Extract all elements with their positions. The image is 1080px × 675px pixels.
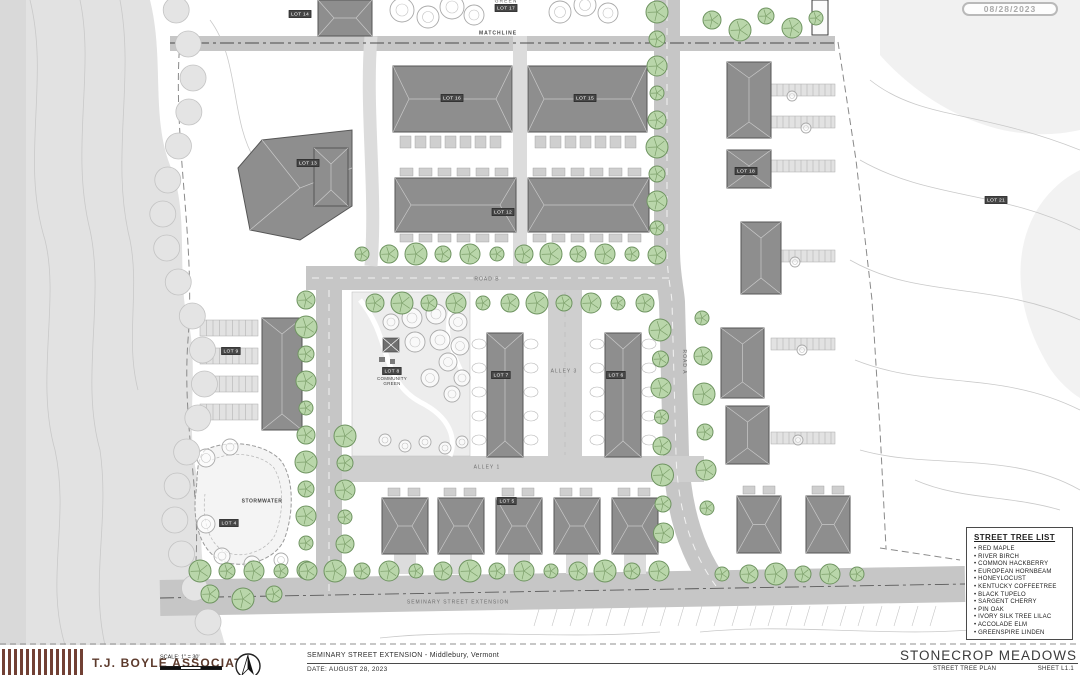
porch-stub <box>625 136 636 148</box>
patio-oval <box>590 387 604 397</box>
porch-stub <box>522 488 534 496</box>
woods-edge-tree <box>191 371 217 397</box>
street-tree-icon <box>297 426 315 444</box>
street-tree-icon <box>380 245 398 263</box>
sheet-number: SHEET L1.1 <box>1038 666 1074 672</box>
street-tree-icon <box>765 563 787 585</box>
lot-label: LOT 12 <box>492 208 514 216</box>
street-tree-icon <box>646 1 668 23</box>
porch-stub <box>590 168 603 176</box>
street-tree-icon <box>501 294 519 312</box>
hatch-tick <box>858 606 864 626</box>
patio-oval <box>472 411 486 421</box>
street-tree-icon <box>489 563 505 579</box>
woods-edge-tree <box>185 405 211 431</box>
canopy-tree-icon <box>430 330 450 350</box>
street-tree-icon <box>435 246 451 262</box>
street-tree-icon <box>694 347 712 365</box>
woods-edge-tree <box>163 0 189 23</box>
street-tree-icon <box>490 247 504 261</box>
street-tree-icon <box>647 56 667 76</box>
lot-label: LOT 4 <box>219 519 238 527</box>
site-plan-canvas <box>0 0 1080 645</box>
lot-label: LOT 9 <box>221 347 240 355</box>
woods-edge-tree <box>176 99 202 125</box>
porch-stub <box>476 234 489 242</box>
alley-1-label: ALLEY 1 <box>474 464 501 470</box>
hatch-tick <box>894 606 900 626</box>
porch-stub <box>580 488 592 496</box>
street-tree-list-item: COMMON HACKBERRY <box>974 561 1067 569</box>
street-tree-icon <box>651 378 671 398</box>
canopy-tree-icon <box>379 434 391 446</box>
hatch-tick <box>714 606 720 626</box>
porch-stub <box>438 168 451 176</box>
street-tree-list-item: SARGENT CHERRY <box>974 599 1067 607</box>
street-tree-icon <box>700 501 714 515</box>
street-tree-icon <box>219 563 235 579</box>
porch-stub <box>400 136 411 148</box>
lot-label: LOT 18 <box>735 167 757 175</box>
street-tree-icon <box>391 292 413 314</box>
street-tree-list-item: PIN OAK <box>974 607 1067 615</box>
street-tree-list-item: ACCOLADE ELM <box>974 622 1067 630</box>
street-tree-icon <box>569 562 587 580</box>
lot-label: LOT 21 <box>985 196 1007 204</box>
patio-oval <box>642 411 656 421</box>
patio-oval <box>472 363 486 373</box>
patio-oval <box>524 411 538 421</box>
tjboyle-logo <box>2 649 84 675</box>
hatch-tick <box>732 606 738 626</box>
building <box>727 62 771 138</box>
scale-label: SCALE: 1" = 30' <box>160 654 199 660</box>
street-tree-icon <box>338 510 352 524</box>
hatch-tick <box>750 606 756 626</box>
porch-stub <box>580 136 591 148</box>
building <box>496 498 542 554</box>
woods-edge-tree <box>169 541 195 567</box>
matchline-label: MATCHLINE <box>479 30 517 36</box>
street-tree-icon <box>556 295 572 311</box>
canopy-tree-icon <box>440 0 464 19</box>
porch-stub <box>438 234 451 242</box>
porch-stub <box>571 234 584 242</box>
building <box>806 496 850 553</box>
street-tree-icon <box>295 316 317 338</box>
street-tree-icon <box>655 496 671 512</box>
street-tree-icon <box>758 8 774 24</box>
porch-stub <box>400 234 413 242</box>
street-tree-icon <box>649 561 669 581</box>
street-tree-icon <box>653 437 671 455</box>
porch-stub <box>475 136 486 148</box>
canopy-tree-icon <box>405 332 425 352</box>
patio-oval <box>642 363 656 373</box>
street-tree-list-item: GREENSPIRE LINDEN <box>974 630 1067 638</box>
street-tree-icon <box>703 11 721 29</box>
street-tree-icon <box>232 588 254 610</box>
porch-stub <box>495 168 508 176</box>
street-tree-icon <box>636 294 654 312</box>
street-tree-icon <box>460 244 480 264</box>
street-tree-icon <box>244 561 264 581</box>
patio-oval <box>524 363 538 373</box>
porch-stub <box>408 488 420 496</box>
street-tree-icon <box>693 383 715 405</box>
parking-row <box>771 84 835 96</box>
street-tree-icon <box>595 244 615 264</box>
woods-edge-tree <box>195 609 221 635</box>
porch-stub <box>444 488 456 496</box>
woods-edge-tree <box>154 235 180 261</box>
hatch-tick <box>786 606 792 626</box>
lot-label: LOT 15 <box>574 94 596 102</box>
canopy-tree-icon <box>574 0 596 16</box>
seminary-street-label: SEMINARY STREET EXTENSION <box>407 599 509 605</box>
woods-edge-tree <box>165 269 191 295</box>
porch-stub <box>430 136 441 148</box>
street-tree-icon <box>336 535 354 553</box>
street-tree-icon <box>298 346 314 362</box>
hatch-tick <box>570 606 576 626</box>
canopy-tree-icon <box>419 436 431 448</box>
street-tree-icon <box>515 245 533 263</box>
parking-row <box>771 160 835 172</box>
road-a-label: ROAD A <box>681 350 687 375</box>
hatch-tick <box>840 606 846 626</box>
site-plan: MATCHLINE GREEN ROAD B ROAD A ALLEY 3 AL… <box>0 0 1080 645</box>
porch-stub <box>476 168 489 176</box>
canopy-tree-icon <box>454 370 470 386</box>
street-tree-icon <box>649 319 671 341</box>
hatch-tick <box>660 606 666 626</box>
lot-label: LOT 17 <box>495 4 517 12</box>
woods-edge-tree <box>175 31 201 57</box>
porch-stub <box>832 486 844 494</box>
woods-edge-tree <box>174 439 200 465</box>
canopy-tree-icon <box>399 440 411 452</box>
street-tree-list-item: RIVER BIRCH <box>974 554 1067 562</box>
street-tree-icon <box>421 295 437 311</box>
street-tree-icon <box>697 424 713 440</box>
street-tree-list-item: KENTUCKY COFFEETREE <box>974 584 1067 592</box>
street-tree-list-item: BLACK TUPELO <box>974 592 1067 600</box>
lot-label: LOT 5 <box>497 497 516 505</box>
alley-3-label: ALLEY 3 <box>551 368 578 374</box>
street-tree-icon <box>379 561 399 581</box>
project-name: STONECROP MEADOWS <box>900 648 1077 663</box>
canopy-tree-icon <box>451 337 469 355</box>
canopy-tree-icon <box>598 3 618 23</box>
street-tree-list-item: IVORY SILK TREE LILAC <box>974 614 1067 622</box>
building <box>262 318 302 430</box>
canopy-tree-icon <box>787 91 797 101</box>
porch-stub <box>812 486 824 494</box>
porch-stub <box>743 486 755 494</box>
woods-edge-tree <box>164 473 190 499</box>
patio-oval <box>590 339 604 349</box>
street-tree-icon <box>820 564 840 584</box>
porch-stub <box>502 488 514 496</box>
street-tree-icon <box>649 31 665 47</box>
street-tree-icon <box>189 560 211 582</box>
patio-oval <box>642 339 656 349</box>
woods-edge-tree <box>180 65 206 91</box>
street-tree-icon <box>729 19 751 41</box>
porch-stub <box>495 234 508 242</box>
canopy-tree-icon <box>421 369 439 387</box>
canopy-tree-icon <box>197 515 215 533</box>
porch-stub <box>552 168 565 176</box>
street-tree-icon <box>295 451 317 473</box>
hatch-tick <box>930 606 936 626</box>
canopy-tree-icon <box>464 5 484 25</box>
street-tree-icon <box>476 296 490 310</box>
building <box>554 498 600 554</box>
street-tree-icon <box>337 455 353 471</box>
street-tree-icon <box>299 562 317 580</box>
scale-block: SCALE: 1" = 30' <box>160 654 230 670</box>
hatch-tick <box>642 606 648 626</box>
porch-stub <box>533 234 546 242</box>
porch-stub <box>610 136 621 148</box>
street-tree-icon <box>653 351 669 367</box>
street-tree-icon <box>646 136 668 158</box>
porch-stub <box>628 234 641 242</box>
porch-stub <box>457 168 470 176</box>
street-tree-icon <box>652 464 674 486</box>
porch-stub <box>590 234 603 242</box>
drawing-sheet: MATCHLINE GREEN ROAD B ROAD A ALLEY 3 AL… <box>0 0 1080 675</box>
street-tree-list-items: RED MAPLERIVER BIRCHCOMMON HACKBERRYEURO… <box>974 546 1067 637</box>
woods-edge-tree <box>150 201 176 227</box>
street-tree-icon <box>715 567 729 581</box>
porch-stub <box>628 168 641 176</box>
street-tree-icon <box>650 221 664 235</box>
porch-stub <box>638 488 650 496</box>
woods-edge-tree <box>162 507 188 533</box>
canopy-tree-icon <box>390 0 414 22</box>
street-tree-icon <box>650 86 664 100</box>
street-tree-list-title: STREET TREE LIST <box>974 533 1067 542</box>
woods-edge-tree <box>179 303 205 329</box>
porch-stub <box>400 168 413 176</box>
street-tree-list: STREET TREE LIST RED MAPLERIVER BIRCHCOM… <box>966 527 1073 640</box>
revision-date-stamp: 08/28/2023 <box>962 2 1058 16</box>
street-tree-icon <box>809 11 823 25</box>
canopy-tree-icon <box>439 353 457 371</box>
street-tree-icon <box>459 560 481 582</box>
street-tree-icon <box>299 401 313 415</box>
street-tree-icon <box>655 410 669 424</box>
porch-stub <box>419 234 432 242</box>
hatch-tick <box>876 606 882 626</box>
lot-label: LOT 13 <box>297 159 319 167</box>
street-tree-icon <box>366 294 384 312</box>
street-tree-icon <box>201 585 219 603</box>
street-tree-icon <box>434 562 452 580</box>
building <box>737 496 781 553</box>
canopy-tree-icon <box>549 1 571 23</box>
scale-bar <box>160 666 222 670</box>
hatch-tick <box>822 606 828 626</box>
lot-label: LOT 6 <box>606 371 625 379</box>
street-tree-icon <box>324 560 346 582</box>
building <box>612 498 658 554</box>
porch-stub <box>415 136 426 148</box>
street-tree-icon <box>446 293 466 313</box>
lot-label: LOT 14 <box>289 10 311 18</box>
canopy-tree-icon <box>793 435 803 445</box>
street-tree-icon <box>296 506 316 526</box>
porch-stub <box>565 136 576 148</box>
patio-oval <box>472 435 486 445</box>
canopy-tree-icon <box>449 313 467 331</box>
lot-label: LOT 7 <box>491 371 510 379</box>
porch-stub <box>464 488 476 496</box>
street-tree-list-item: RED MAPLE <box>974 546 1067 554</box>
street-tree-icon <box>654 523 674 543</box>
road-b-label: ROAD B <box>474 276 499 282</box>
canopy-tree-icon <box>456 436 468 448</box>
hatch-tick <box>696 606 702 626</box>
building <box>395 178 516 232</box>
street-tree-icon <box>297 291 315 309</box>
patio-oval <box>472 339 486 349</box>
canopy-tree-icon <box>417 6 439 28</box>
canopy-tree-icon <box>444 386 460 402</box>
street-tree-icon <box>581 293 601 313</box>
street-tree-icon <box>514 561 534 581</box>
street-tree-icon <box>526 292 548 314</box>
street-tree-icon <box>740 565 758 583</box>
porch-stub <box>571 168 584 176</box>
building <box>438 498 484 554</box>
building <box>721 328 764 398</box>
stormwater-label: STORMWATER <box>242 498 283 504</box>
porch-stub <box>595 136 606 148</box>
lot-label: LOT 16 <box>441 94 463 102</box>
hatch-tick <box>588 606 594 626</box>
street-tree-icon <box>624 563 640 579</box>
hatch-tick <box>624 606 630 626</box>
hatch-tick <box>606 606 612 626</box>
porch-stub <box>609 168 622 176</box>
street-tree-icon <box>299 536 313 550</box>
project-line: SEMINARY STREET EXTENSION - Middlebury, … <box>307 652 499 659</box>
street-tree-icon <box>355 247 369 261</box>
porch-stub <box>609 234 622 242</box>
woods-edge-tree <box>190 337 216 363</box>
street-tree-icon <box>405 243 427 265</box>
canopy-tree-icon <box>214 548 230 564</box>
hatch-tick <box>912 606 918 626</box>
sheet-title: STREET TREE PLAN <box>933 666 996 672</box>
street-tree-icon <box>782 18 802 38</box>
street-tree-icon <box>354 563 370 579</box>
porch-stub <box>490 136 501 148</box>
patio-oval <box>590 411 604 421</box>
hatch-tick <box>804 606 810 626</box>
building <box>382 498 428 554</box>
porch-stub <box>457 234 470 242</box>
street-tree-list-item: EUROPEAN HORNBEAM <box>974 569 1067 577</box>
street-tree-icon <box>647 191 667 211</box>
street-tree-icon <box>850 567 864 581</box>
hatch-tick <box>768 606 774 626</box>
woods-edge-tree <box>165 133 191 159</box>
street-tree-icon <box>274 564 288 578</box>
street-tree-list-item: HONEYLOCUST <box>974 576 1067 584</box>
date-line: DATE: AUGUST 28, 2023 <box>307 666 387 673</box>
building <box>528 178 649 232</box>
patio-oval <box>590 435 604 445</box>
patio-oval <box>472 387 486 397</box>
community-green-label: COMMUNITY GREEN <box>377 376 407 386</box>
canopy-tree-icon <box>222 439 238 455</box>
porch-stub <box>533 168 546 176</box>
porch-stub <box>552 234 565 242</box>
building <box>726 406 769 464</box>
street-tree-icon <box>594 560 616 582</box>
canopy-tree-icon <box>801 123 811 133</box>
revision-date: 08/28/2023 <box>984 4 1037 14</box>
hatch-tick <box>678 606 684 626</box>
patio-oval <box>524 339 538 349</box>
street-tree-icon <box>335 480 355 500</box>
titleblock-rule <box>307 663 1078 664</box>
street-tree-icon <box>611 296 625 310</box>
porch-stub <box>535 136 546 148</box>
porch-stub <box>460 136 471 148</box>
building <box>741 222 781 294</box>
street-tree-icon <box>570 246 586 262</box>
canopy-tree-icon <box>383 314 399 330</box>
porch-stub <box>618 488 630 496</box>
street-tree-icon <box>648 111 666 129</box>
porch-stub <box>763 486 775 494</box>
patio-oval <box>590 363 604 373</box>
building <box>314 148 348 206</box>
street-tree-icon <box>795 566 811 582</box>
building <box>487 333 523 457</box>
porch-stub <box>388 488 400 496</box>
north-arrow-icon <box>233 651 263 675</box>
street-tree-icon <box>296 371 316 391</box>
street-tree-icon <box>649 166 665 182</box>
patio-oval <box>524 435 538 445</box>
street-tree-icon <box>298 481 314 497</box>
canopy-tree-icon <box>439 442 451 454</box>
street-tree-icon <box>334 425 356 447</box>
street-tree-icon <box>540 243 562 265</box>
street-tree-icon <box>648 246 666 264</box>
porch-stub <box>445 136 456 148</box>
canopy-tree-icon <box>797 345 807 355</box>
street-tree-icon <box>544 564 558 578</box>
building <box>605 333 641 457</box>
street-tree-icon <box>409 564 423 578</box>
patio-oval <box>524 387 538 397</box>
porch-stub <box>560 488 572 496</box>
lot-label: LOT 8 <box>382 367 401 375</box>
parking-row <box>200 320 258 336</box>
porch-stub <box>419 168 432 176</box>
porch-stub <box>550 136 561 148</box>
street-tree-icon <box>695 311 709 325</box>
woods-edge-tree <box>155 167 181 193</box>
